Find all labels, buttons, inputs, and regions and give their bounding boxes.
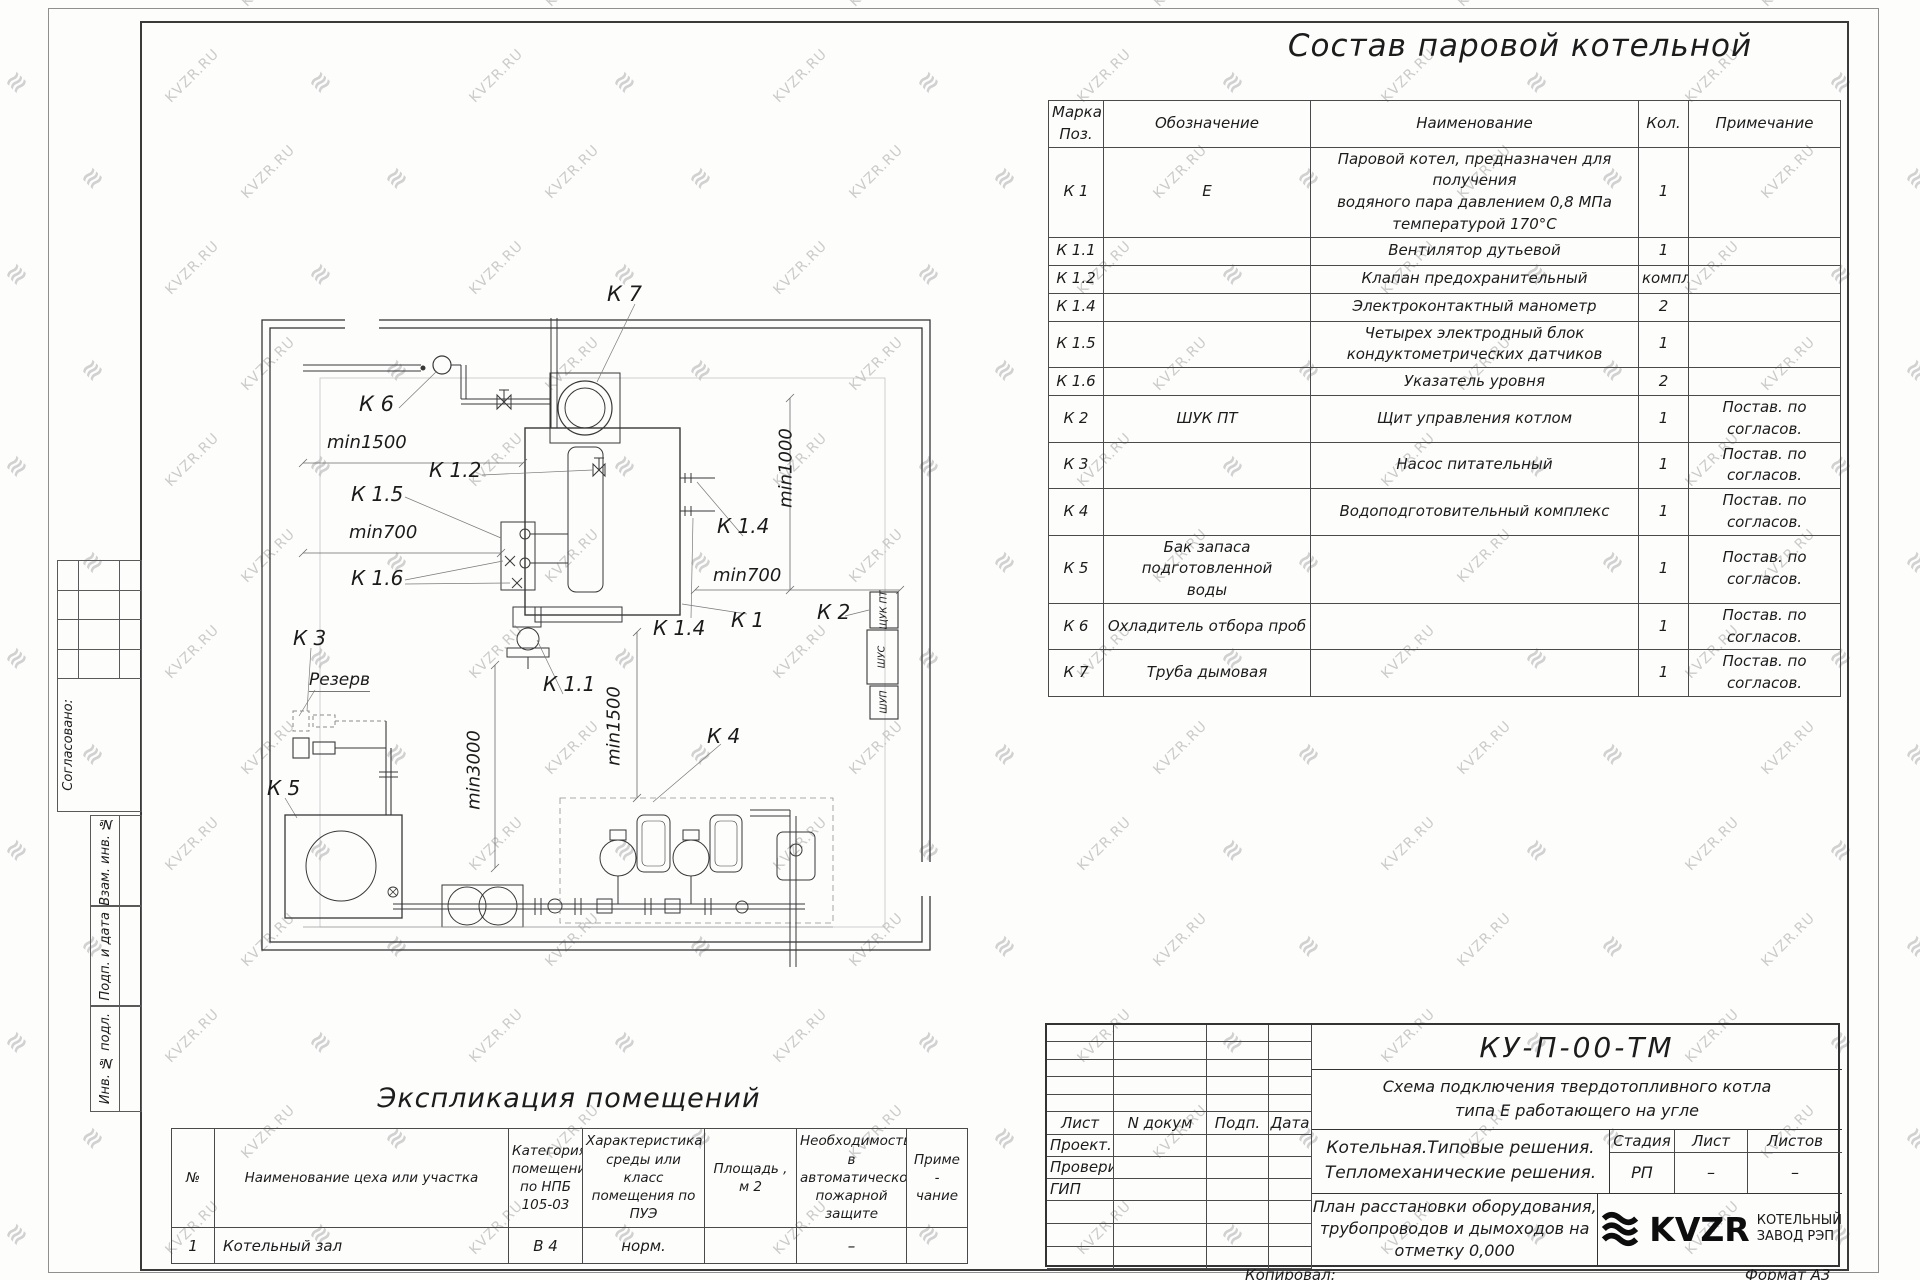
title-block-role-cell: ГИП <box>1047 1179 1114 1201</box>
title-block-cell <box>1114 1179 1207 1201</box>
title-block-cell <box>1207 1157 1269 1179</box>
title-block-cell <box>1207 1025 1269 1042</box>
title-block-cell <box>1207 1135 1269 1157</box>
plan-label: Резерв <box>309 670 370 692</box>
cell-name: Клапан предохранительный <box>1311 265 1639 293</box>
cell-note: Постав. по согласов. <box>1689 603 1841 650</box>
cell-mark: К 7 <box>1049 650 1104 697</box>
title-block-cell <box>1207 1095 1269 1112</box>
scheme-title-line1: Схема подключения твердотопливного котла <box>1383 1075 1772 1100</box>
room-col-header-2: Категория помещения по НПБ 105-03 <box>509 1129 583 1228</box>
cell-note <box>1689 321 1841 368</box>
cell-name <box>1311 650 1639 697</box>
sheet-value: – <box>1675 1153 1748 1193</box>
title-block-cell <box>1114 1157 1207 1179</box>
company-name: КОТЕЛЬНЫЙ ЗАВОД РЭП <box>1757 1213 1842 1246</box>
room-cell-1: Котельный зал <box>215 1228 509 1264</box>
plan-label: К 1.5 <box>351 482 403 506</box>
title-block-header-cell: Лист <box>1047 1112 1114 1135</box>
cell-name: Щит управления котлом <box>1311 396 1639 443</box>
object-title-line1: Котельная.Типовые решения. <box>1326 1136 1594 1162</box>
stamp-label-orig-inv: Инв. № подл. <box>98 1013 113 1104</box>
col-header-designation: Обозначение <box>1104 101 1311 148</box>
equipment-row: К 3Насос питательный1Постав. по согласов… <box>1049 442 1841 489</box>
floor-plan: К 7К 6min1500К 1.2К 1.5min700К 1.6К 3Рез… <box>245 270 945 970</box>
title-block-role-cell: Проект. <box>1047 1135 1114 1157</box>
room-col-header-3: Характеристика среды или класс помещения… <box>583 1129 705 1228</box>
cell-mark: К 1.4 <box>1049 293 1104 321</box>
room-table-title: Экспликация помещений <box>171 1083 967 1114</box>
equipment-row: К 2ШУК ПТЩит управления котлом1Постав. п… <box>1049 396 1841 443</box>
plan-label: К 1.6 <box>351 566 403 590</box>
cell-mark: К 1 <box>1049 147 1104 237</box>
title-block-role-cell: Проверил <box>1047 1157 1114 1179</box>
cell-name: Паровой котел, предназначен для получени… <box>1311 147 1639 237</box>
cell-designation <box>1104 321 1311 368</box>
cell-qty: 1 <box>1639 650 1689 697</box>
room-cell-5: – <box>797 1228 907 1264</box>
title-block-cell <box>1114 1060 1207 1077</box>
title-block: ЛистN докумПодп.ДатаПроект.ПроверилГИП К… <box>1045 1023 1840 1267</box>
title-block-cell <box>1207 1224 1269 1247</box>
title-block-header-cell: Подп. <box>1207 1112 1269 1135</box>
col-header-note: Примечание <box>1689 101 1841 148</box>
equipment-row: К 1.6Указатель уровня2 <box>1049 368 1841 396</box>
format-label: Формат А3 <box>1745 1266 1830 1280</box>
logo-text: KVZR <box>1649 1210 1749 1249</box>
plan-label: К 6 <box>359 392 394 416</box>
title-block-cell <box>1114 1201 1207 1224</box>
cell-name: Четырех электродный блок кондуктометриче… <box>1311 321 1639 368</box>
subst-inv-stamp: Взам. инв. № <box>90 815 142 907</box>
plan-label: min700 <box>713 565 781 586</box>
cell-note: Постав. по согласов. <box>1689 442 1841 489</box>
cell-qty: 1 <box>1639 442 1689 489</box>
cell-designation: Е <box>1104 147 1311 237</box>
cell-name: Указатель уровня <box>1311 368 1639 396</box>
plan-label: К 3 <box>293 626 326 650</box>
title-block-cell <box>1269 1224 1312 1247</box>
cell-designation <box>1104 293 1311 321</box>
room-cell-3: норм. <box>583 1228 705 1264</box>
title-block-cell <box>1114 1042 1207 1059</box>
cell-mark: К 2 <box>1049 396 1104 443</box>
equipment-row: К 7Труба дымовая1Постав. по согласов. <box>1049 650 1841 697</box>
cell-qty: 1 <box>1639 603 1689 650</box>
cell-note <box>1689 265 1841 293</box>
plan-label: К 2 <box>817 600 850 624</box>
title-block-cell <box>1114 1224 1207 1247</box>
cell-mark: К 3 <box>1049 442 1104 489</box>
room-col-header-1: Наименование цеха или участка <box>215 1129 509 1228</box>
sign-date-stamp: Подп. и дата <box>90 905 142 1007</box>
cell-name: Водоподготовительный комплекс <box>1311 489 1639 536</box>
title-block-cell <box>1207 1179 1269 1201</box>
cell-note: Постав. по согласов. <box>1689 650 1841 697</box>
plan-label: min1500 <box>327 432 407 453</box>
title-block-cell <box>1047 1060 1114 1077</box>
title-block-cell <box>1114 1095 1207 1112</box>
title-block-signature-grid: ЛистN докумПодп.ДатаПроект.ПроверилГИП <box>1047 1025 1312 1265</box>
plan-label: min3000 <box>464 730 485 810</box>
cabinet-label: ШУС <box>877 646 888 669</box>
title-block-cell <box>1114 1077 1207 1094</box>
stamp-label-subst-inv: Взам. инв. № <box>98 816 113 906</box>
cell-designation <box>1104 368 1311 396</box>
sheets-label: Листов <box>1748 1130 1842 1152</box>
equipment-row: К 1ЕПаровой котел, предназначен для полу… <box>1049 147 1841 237</box>
col-header-qty: Кол. <box>1639 101 1689 148</box>
room-col-header-6: Приме - чание <box>907 1129 968 1228</box>
cell-qty: 1 <box>1639 147 1689 237</box>
room-col-header-0: № <box>172 1129 215 1228</box>
sheets-value: – <box>1748 1153 1842 1193</box>
cell-designation: ШУК ПТ <box>1104 396 1311 443</box>
cell-qty: 1 <box>1639 396 1689 443</box>
equipment-table: Марка Поз. Обозначение Наименование Кол.… <box>1048 100 1841 697</box>
cell-note: Постав. по согласов. <box>1689 489 1841 536</box>
equipment-row: К 1.1Вентилятор дутьевой1 <box>1049 237 1841 265</box>
cell-designation <box>1104 237 1311 265</box>
plan-label: К 1.2 <box>429 458 481 482</box>
scheme-title-line2: типа Е работающего на угле <box>1455 1099 1699 1124</box>
plan-label: К 7 <box>607 282 642 306</box>
plan-label: min700 <box>349 522 417 543</box>
equipment-table-header-row: Марка Поз. Обозначение Наименование Кол.… <box>1049 101 1841 148</box>
equipment-table-title: Состав паровой котельной <box>1200 28 1840 64</box>
title-block-cell <box>1269 1060 1312 1077</box>
copied-label: Копировал: <box>1245 1266 1336 1280</box>
title-block-cell <box>1269 1157 1312 1179</box>
title-block-cell <box>1114 1025 1207 1042</box>
plan-label: К 1.4 <box>717 514 769 538</box>
title-block-cell <box>1047 1095 1114 1112</box>
title-block-cell <box>1047 1042 1114 1059</box>
cell-note <box>1689 237 1841 265</box>
cell-name <box>1311 535 1639 603</box>
stamp-label-sign-date: Подп. и дата <box>98 912 113 1001</box>
title-block-cell <box>1269 1179 1312 1201</box>
title-block-cell <box>1269 1077 1312 1094</box>
sheet-content-title: План расстановки оборудования, трубопров… <box>1312 1194 1598 1265</box>
room-cell-4 <box>705 1228 797 1264</box>
room-col-header-5: Необходимость в автоматической пожарной … <box>797 1129 907 1228</box>
cell-mark: К 1.2 <box>1049 265 1104 293</box>
plan-label: К 4 <box>707 724 740 748</box>
title-block-cell <box>1269 1025 1312 1042</box>
orig-inv-stamp: Инв. № подл. <box>90 1005 142 1112</box>
cell-note: Постав. по согласов. <box>1689 535 1841 603</box>
cell-name: Насос питательный <box>1311 442 1639 489</box>
approval-stamp: Согласовано: <box>57 560 142 812</box>
stage-value: РП <box>1610 1153 1675 1193</box>
cell-name <box>1311 603 1639 650</box>
title-block-cell <box>1269 1095 1312 1112</box>
cell-qty: 1 <box>1639 321 1689 368</box>
room-cell-6 <box>907 1228 968 1264</box>
title-block-cell <box>1207 1077 1269 1094</box>
title-block-cell <box>1114 1247 1207 1269</box>
stage-label: Стадия <box>1610 1130 1675 1152</box>
cell-qty: 2 <box>1639 368 1689 396</box>
room-cell-2: В 4 <box>509 1228 583 1264</box>
equipment-row: К 1.2Клапан предохранительныйкомпл. <box>1049 265 1841 293</box>
cell-mark: К 1.6 <box>1049 368 1104 396</box>
equipment-row: К 4Водоподготовительный комплекс1Постав.… <box>1049 489 1841 536</box>
cell-qty: компл. <box>1639 265 1689 293</box>
cell-name: Вентилятор дутьевой <box>1311 237 1639 265</box>
sheet-label: Лист <box>1675 1130 1748 1152</box>
title-block-cell <box>1207 1060 1269 1077</box>
cell-qty: 1 <box>1639 535 1689 603</box>
plan-label: К 1.4 <box>653 616 705 640</box>
title-block-cell <box>1114 1135 1207 1157</box>
document-number: КУ-П-00-ТМ <box>1312 1025 1842 1070</box>
object-title: Котельная.Типовые решения. Тепломеханиче… <box>1312 1130 1610 1193</box>
cell-note <box>1689 293 1841 321</box>
room-table: №Наименование цеха или участкаКатегория … <box>171 1128 968 1264</box>
plan-label: К 5 <box>267 776 300 800</box>
scheme-title: Схема подключения твердотопливного котла… <box>1312 1070 1842 1130</box>
title-block-cell <box>1047 1224 1114 1247</box>
equipment-row: К 1.5Четырех электродный блок кондуктоме… <box>1049 321 1841 368</box>
cell-qty: 1 <box>1639 237 1689 265</box>
title-block-cell <box>1207 1201 1269 1224</box>
equipment-row: К 6Охладитель отбора проб1Постав. по сог… <box>1049 603 1841 650</box>
col-header-mark: Марка Поз. <box>1049 101 1104 148</box>
title-block-cell <box>1047 1025 1114 1042</box>
title-block-cell <box>1047 1247 1114 1269</box>
cell-mark: К 5 <box>1049 535 1104 603</box>
room-cell-0: 1 <box>172 1228 215 1264</box>
cell-mark: К 1.1 <box>1049 237 1104 265</box>
title-block-cell <box>1269 1042 1312 1059</box>
company-name-line1: КОТЕЛЬНЫЙ <box>1757 1213 1842 1228</box>
title-block-cell <box>1269 1201 1312 1224</box>
company-logo: KVZR КОТЕЛЬНЫЙ ЗАВОД РЭП <box>1598 1194 1842 1265</box>
plan-label: min1000 <box>776 428 797 508</box>
cell-note <box>1689 368 1841 396</box>
object-title-line2: Тепломеханические решения. <box>1325 1161 1596 1187</box>
drawing-sheet: KVZR.RU≋KVZR.RU≋KVZR.RU≋KVZR.RU≋KVZR.RU≋… <box>0 0 1920 1280</box>
cell-designation <box>1104 265 1311 293</box>
plan-label: К 1 <box>731 608 764 632</box>
cabinet-label: ЩУК ПТ <box>879 591 890 630</box>
kvzr-logo-icon <box>1598 1210 1642 1248</box>
equipment-row: К 1.4Электроконтактный манометр2 <box>1049 293 1841 321</box>
cell-designation <box>1104 442 1311 489</box>
cabinet-label: ШУП <box>879 690 890 713</box>
room-table-row: 1Котельный залВ 4норм.– <box>172 1228 968 1264</box>
cell-designation: Охладитель отбора проб <box>1104 603 1311 650</box>
title-block-header-cell: N докум <box>1114 1112 1207 1135</box>
cell-designation: Труба дымовая <box>1104 650 1311 697</box>
title-block-header-cell: Дата <box>1269 1112 1312 1135</box>
stamp-label-approved: Согласовано: <box>61 699 76 791</box>
title-block-cell <box>1047 1077 1114 1094</box>
col-header-name: Наименование <box>1311 101 1639 148</box>
room-col-header-4: Площадь , м 2 <box>705 1129 797 1228</box>
cell-note <box>1689 147 1841 237</box>
cell-qty: 1 <box>1639 489 1689 536</box>
cell-designation <box>1104 489 1311 536</box>
title-block-cell <box>1269 1135 1312 1157</box>
room-table-header-row: №Наименование цеха или участкаКатегория … <box>172 1129 968 1228</box>
plan-label: min1500 <box>604 686 625 766</box>
title-block-cell <box>1047 1201 1114 1224</box>
cell-mark: К 1.5 <box>1049 321 1104 368</box>
plan-label: К 1.1 <box>543 672 595 696</box>
title-block-cell <box>1207 1042 1269 1059</box>
company-name-line2: ЗАВОД РЭП <box>1757 1229 1834 1244</box>
cell-mark: К 4 <box>1049 489 1104 536</box>
cell-name: Электроконтактный манометр <box>1311 293 1639 321</box>
cell-note: Постав. по согласов. <box>1689 396 1841 443</box>
cell-designation: Бак запаса подготовленной воды <box>1104 535 1311 603</box>
equipment-row: К 5Бак запаса подготовленной воды1Постав… <box>1049 535 1841 603</box>
cell-qty: 2 <box>1639 293 1689 321</box>
cell-mark: К 6 <box>1049 603 1104 650</box>
